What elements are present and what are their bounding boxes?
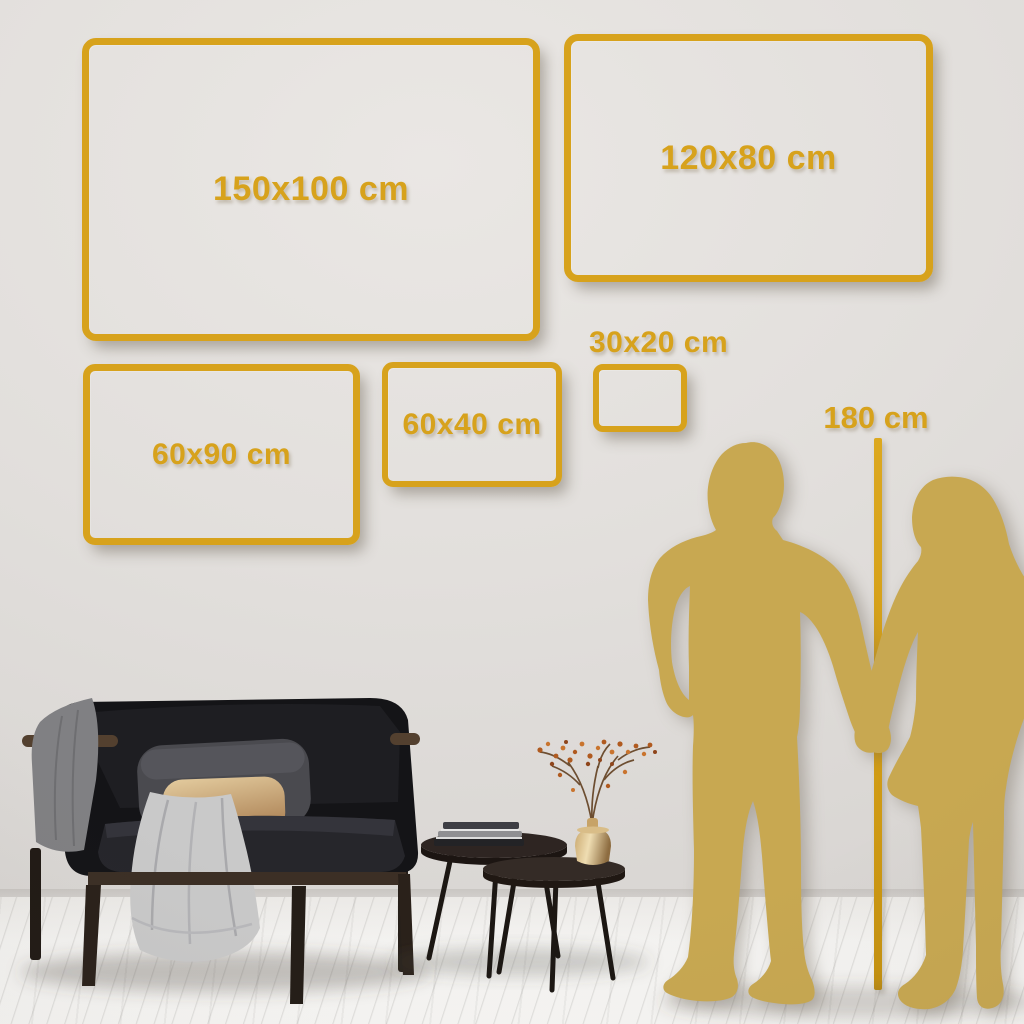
size-label-60x90: 60x90 cm <box>152 438 291 472</box>
size-label-30x20: 30x20 cm <box>589 326 728 360</box>
brass-vase <box>575 818 611 865</box>
size-frame-30x20 <box>593 364 687 432</box>
small-table-top <box>483 857 625 881</box>
books <box>434 822 524 846</box>
size-guide-scene: 150x100 cm 120x80 cm 30x20 cm 60x40 cm 6… <box>0 0 1024 1024</box>
large-table-top <box>421 832 567 858</box>
size-label-150x100: 150x100 cm <box>213 170 409 209</box>
size-label-120x80: 120x80 cm <box>660 139 837 178</box>
height-measure-line <box>874 438 882 990</box>
dried-branch-plant <box>537 740 657 824</box>
size-frame-60x40: 60x40 cm <box>382 362 562 487</box>
wood-floor <box>0 897 1024 1024</box>
size-label-60x40: 60x40 cm <box>402 408 541 442</box>
size-frame-120x80: 120x80 cm <box>564 34 933 282</box>
size-frame-60x90: 60x90 cm <box>83 364 360 545</box>
height-reference-label: 180 cm <box>796 400 956 436</box>
pillows <box>136 738 312 837</box>
wood-arm-rail <box>22 735 118 747</box>
size-frame-150x100: 150x100 cm <box>82 38 540 341</box>
